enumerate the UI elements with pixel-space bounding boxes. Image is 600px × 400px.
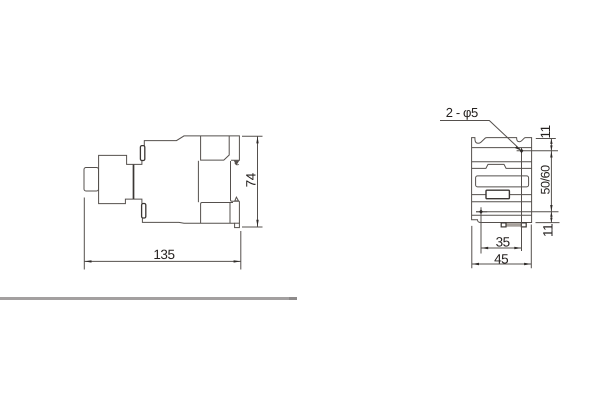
svg-text:11: 11	[540, 224, 555, 237]
svg-text:135: 135	[153, 247, 174, 262]
svg-text:45: 45	[494, 251, 508, 266]
svg-text:11: 11	[538, 125, 553, 138]
svg-text:2 - φ5: 2 - φ5	[446, 105, 478, 120]
svg-text:50/60: 50/60	[538, 165, 552, 195]
svg-text:74: 74	[244, 172, 259, 187]
svg-text:35: 35	[496, 234, 510, 249]
